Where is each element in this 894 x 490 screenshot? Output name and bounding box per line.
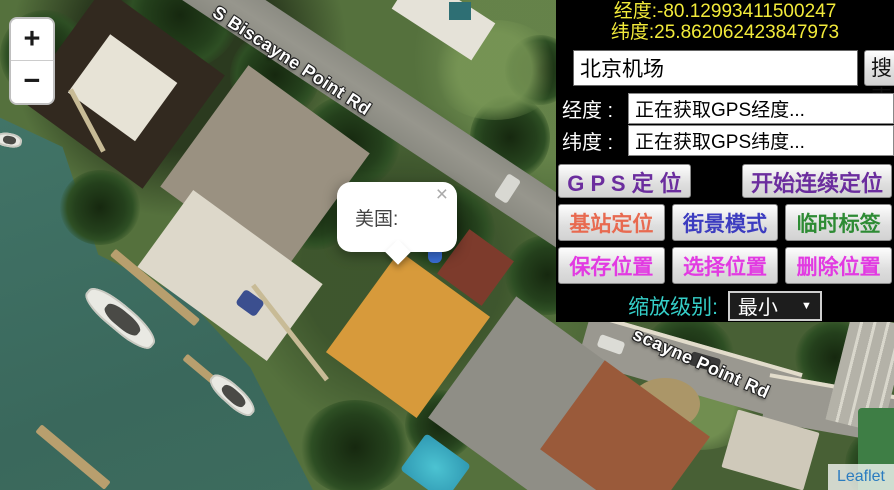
gps-longitude-input[interactable] — [628, 93, 894, 124]
zoom-level-row: 缩放级别: 最小 ▼ — [556, 290, 894, 321]
dropdown-caret-icon: ▼ — [801, 300, 812, 312]
zoom-level-select[interactable]: 最小 ▼ — [728, 291, 822, 321]
gps-latitude-label: 纬度 : — [558, 126, 628, 155]
control-panel: 经度:-80.12993411500247 纬度:25.862062423847… — [556, 0, 894, 322]
search-row: 搜索 — [573, 50, 890, 86]
gps-latitude-row: 纬度 : — [558, 125, 894, 156]
tree — [300, 400, 410, 490]
temp-label-button[interactable]: 临时标签 — [785, 204, 892, 241]
zoom-out-button[interactable]: − — [11, 61, 53, 103]
geolocation-app-window: S Biscayne Point Rd scayne Point Rd + − … — [0, 0, 894, 490]
map-popup: 美国: × — [337, 182, 457, 252]
gps-longitude-row: 经度 : — [558, 93, 894, 124]
delete-position-button[interactable]: 删除位置 — [785, 247, 892, 284]
position-actions-row: 保存位置 选择位置 删除位置 — [558, 247, 892, 284]
locate-mode-row: 基站定位 街景模式 临时标签 — [558, 204, 892, 241]
search-button[interactable]: 搜索 — [864, 50, 894, 86]
gps-buttons-row: G P S 定 位 开始连续定位 — [558, 164, 892, 198]
building-teal-structure — [449, 2, 471, 20]
close-icon[interactable]: × — [436, 184, 448, 206]
map-zoom-control: + − — [9, 17, 55, 105]
tree — [60, 170, 140, 245]
zoom-level-label: 缩放级别: — [628, 291, 718, 321]
zoom-level-value: 最小 — [738, 291, 778, 320]
longitude-readout: 经度:-80.12993411500247 — [556, 1, 894, 22]
continuous-locate-button[interactable]: 开始连续定位 — [742, 164, 892, 198]
popup-text: 美国: — [355, 204, 398, 231]
gps-longitude-label: 经度 : — [558, 94, 628, 123]
latitude-readout: 纬度:25.862062423847973 — [556, 22, 894, 43]
zoom-in-button[interactable]: + — [11, 19, 53, 61]
gps-locate-button[interactable]: G P S 定 位 — [558, 164, 691, 198]
select-position-button[interactable]: 选择位置 — [672, 247, 779, 284]
map-attribution: Leaflet — [828, 464, 894, 490]
save-position-button[interactable]: 保存位置 — [558, 247, 665, 284]
cell-tower-locate-button[interactable]: 基站定位 — [558, 204, 665, 241]
building-roof-white-section — [68, 34, 178, 141]
gps-latitude-input[interactable] — [628, 125, 894, 156]
search-input[interactable] — [573, 50, 858, 86]
street-view-button[interactable]: 街景模式 — [672, 204, 779, 241]
leaflet-link[interactable]: Leaflet — [837, 468, 885, 485]
